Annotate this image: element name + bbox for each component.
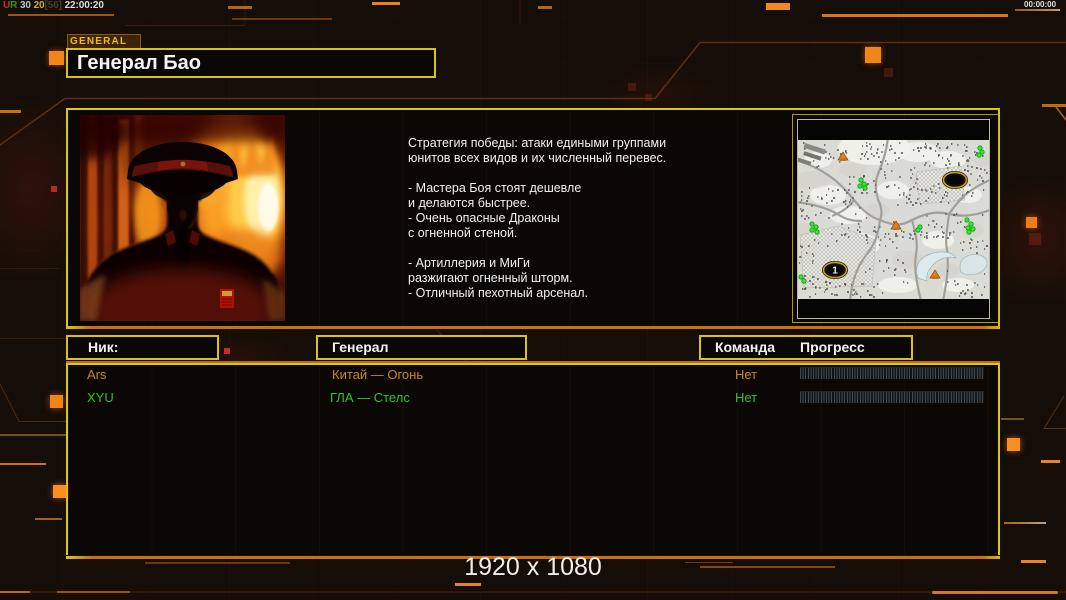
svg-text:1: 1 [832,265,838,276]
